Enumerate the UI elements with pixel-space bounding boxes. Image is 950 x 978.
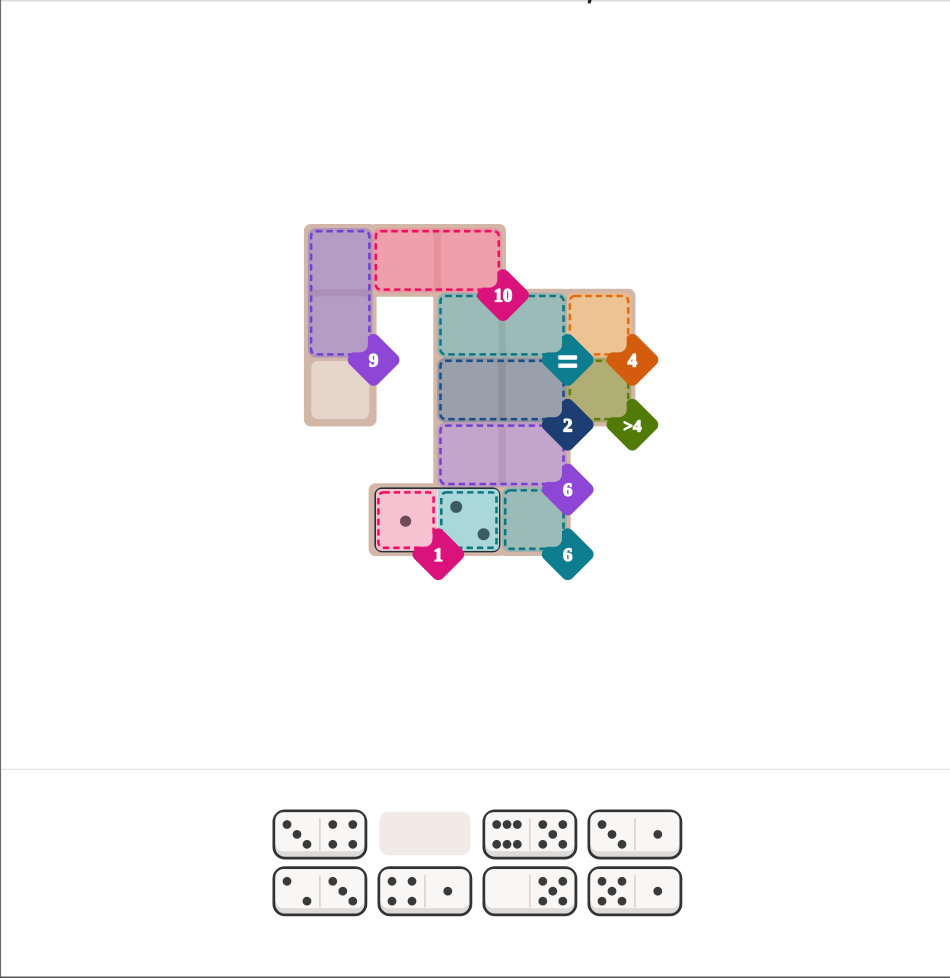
svg-text:6: 6 [563,545,573,566]
svg-text:10: 10 [494,287,513,307]
svg-text:2: 2 [563,415,573,436]
svg-text:>4: >4 [623,416,642,435]
svg-text:9: 9 [369,351,379,372]
svg-text:4: 4 [628,351,638,372]
svg-text:1: 1 [434,545,444,566]
svg-text:6: 6 [563,480,573,501]
